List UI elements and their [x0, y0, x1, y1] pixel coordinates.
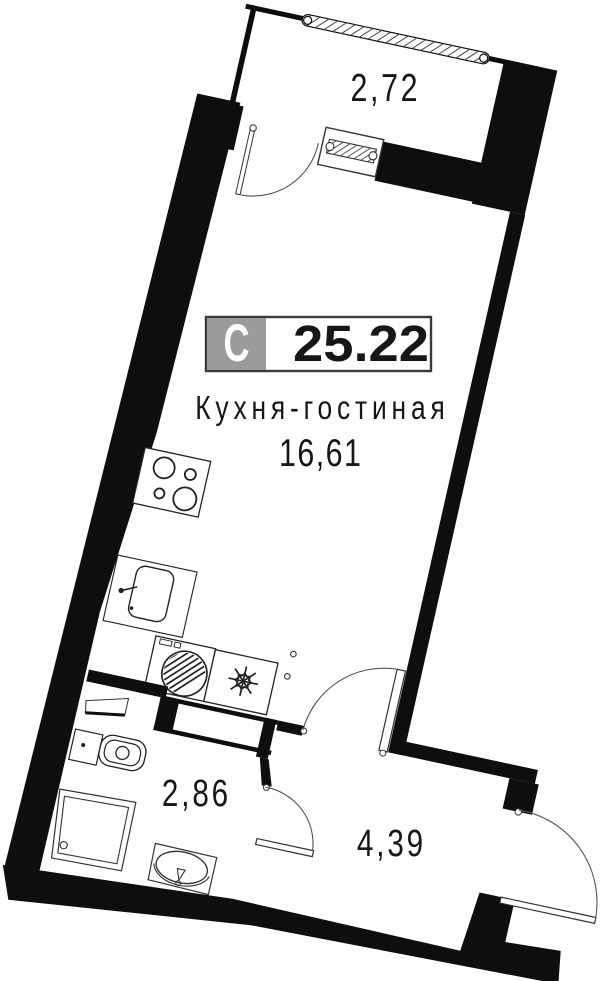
svg-text:2,72: 2,72	[350, 66, 417, 109]
svg-text:C: C	[223, 313, 249, 373]
svg-text:25.22: 25.22	[293, 315, 429, 372]
svg-text:2,86: 2,86	[162, 773, 228, 815]
svg-text:16,61: 16,61	[279, 431, 361, 474]
svg-text:4,39: 4,39	[357, 823, 423, 865]
